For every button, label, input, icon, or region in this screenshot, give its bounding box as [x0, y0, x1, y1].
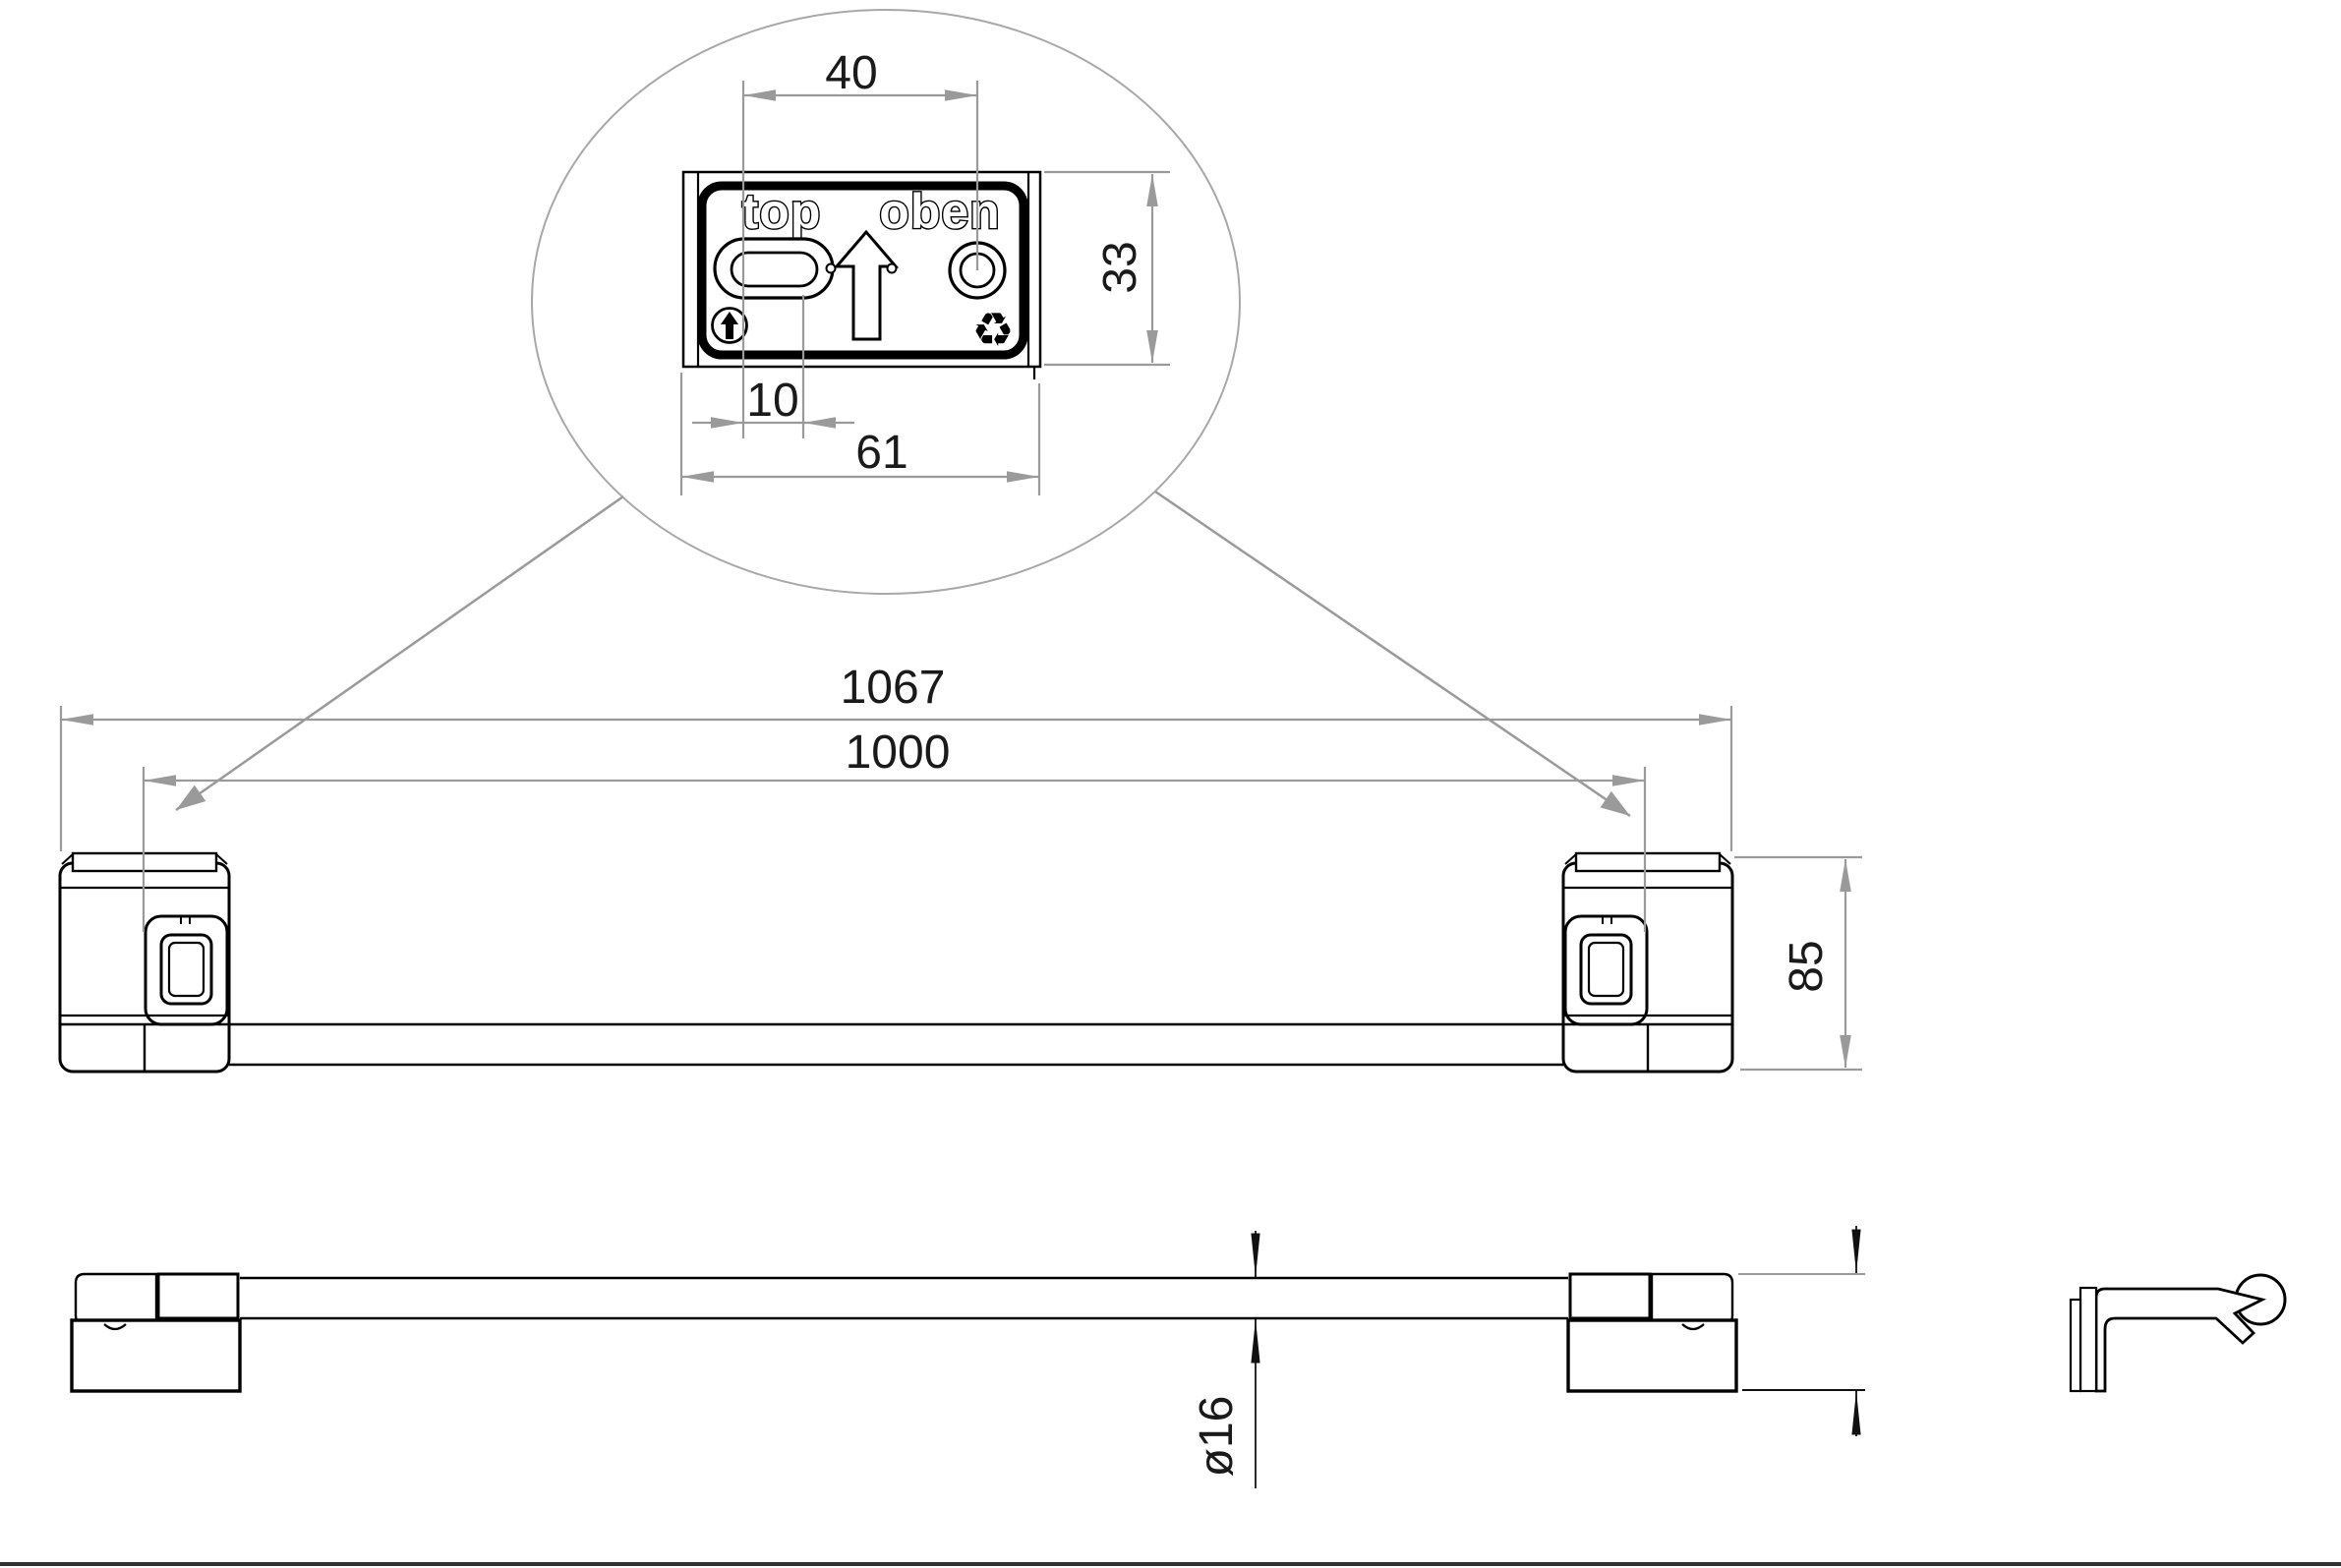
plan-view	[72, 1274, 1736, 1391]
recycle-icon: ♻	[971, 303, 1014, 358]
front-view	[60, 853, 1732, 1072]
side-view	[2071, 1275, 2285, 1391]
dim-85-label: 85	[1781, 940, 1833, 992]
plate-label-top: top	[742, 184, 822, 239]
dim-40-label: 40	[825, 47, 877, 99]
side-bracket-profile	[2096, 1289, 2262, 1391]
plan-right-end	[1568, 1274, 1736, 1391]
plan-view-dimensions	[1256, 1226, 1865, 1488]
plan-left-end	[72, 1274, 240, 1391]
leader-line-left	[176, 496, 623, 810]
leader-line-right	[1155, 492, 1630, 816]
drawing-sheet: top oben ♻	[0, 0, 2341, 1568]
sheet-bottom-border	[0, 1562, 2341, 1566]
plan-bracket-housing	[158, 1274, 238, 1318]
dim-1067-label: 1067	[841, 662, 946, 714]
dim-33-label: 33	[1094, 241, 1146, 293]
dim-10-label: 10	[746, 375, 798, 427]
plate-label-oben: oben	[879, 184, 1000, 239]
plan-bracket-body	[72, 1320, 240, 1391]
side-wall-plate-inner	[2080, 1288, 2096, 1391]
side-wall-plate	[2071, 1300, 2080, 1391]
technical-drawing: top oben ♻	[0, 0, 2341, 1568]
bracket-front-right	[1563, 853, 1732, 1072]
mounting-plate: top oben ♻	[683, 172, 1040, 379]
dim-61-label: 61	[855, 427, 907, 479]
plan-wall-plate	[76, 1274, 156, 1324]
dim-d16-label: ø16	[1191, 1396, 1243, 1478]
dim-1000-label: 1000	[846, 726, 951, 779]
